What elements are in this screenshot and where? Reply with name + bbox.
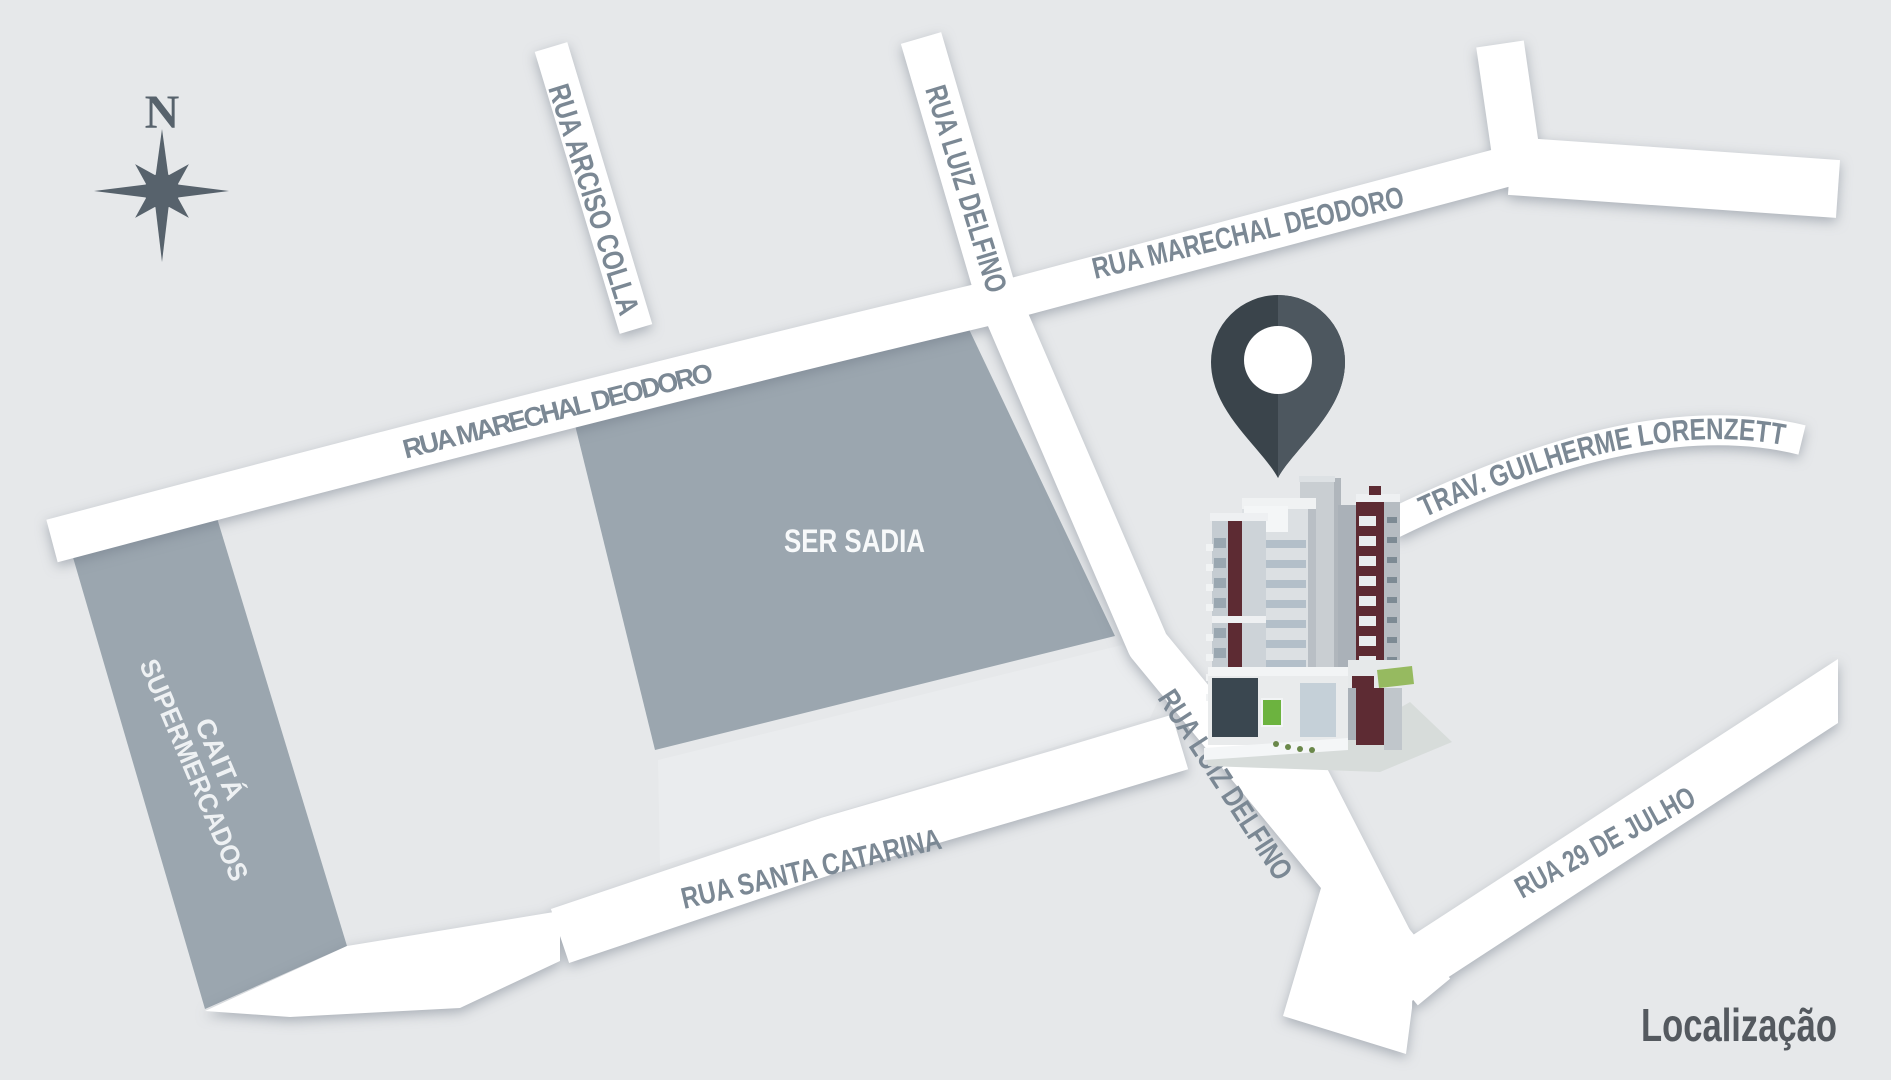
svg-text:SER SADIA: SER SADIA — [784, 523, 925, 559]
svg-text:Localização: Localização — [1641, 999, 1837, 1051]
